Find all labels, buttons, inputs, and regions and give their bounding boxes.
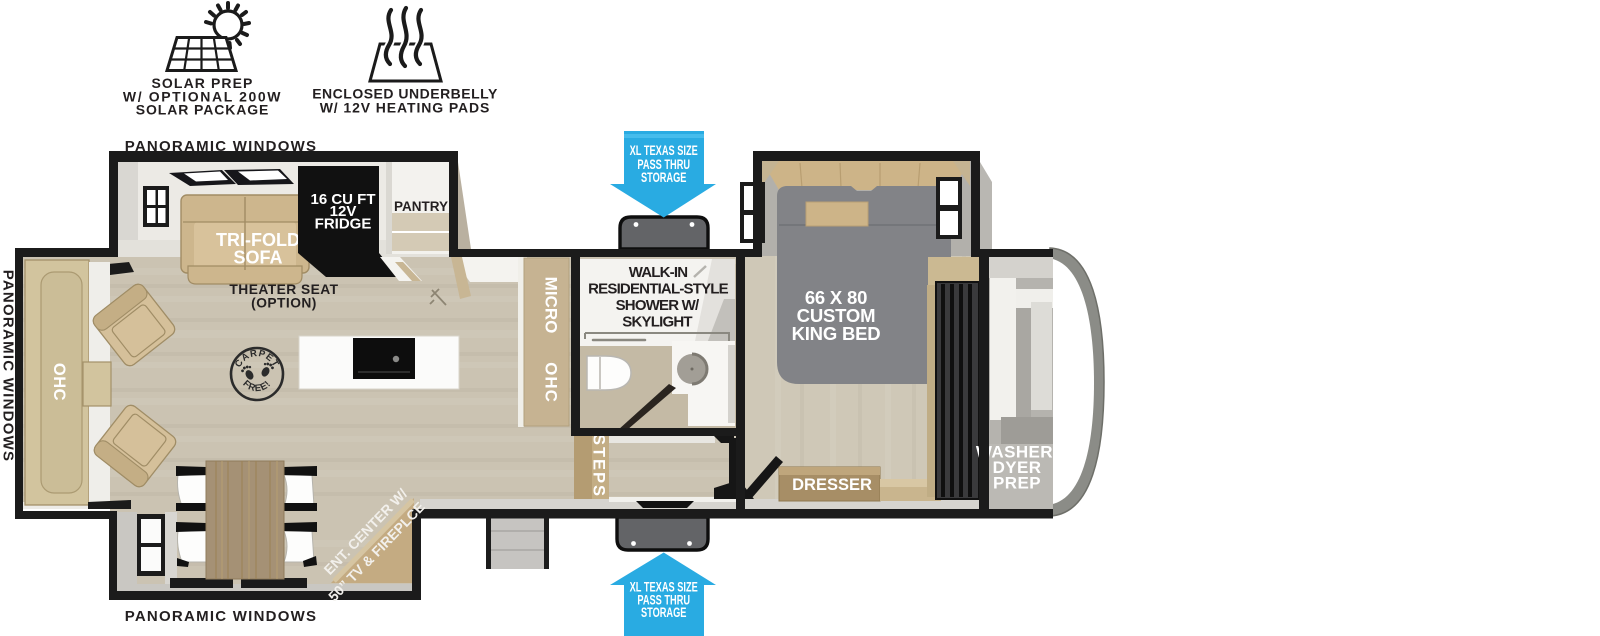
svg-text:SOFA: SOFA	[233, 248, 282, 268]
svg-text:FRIDGE: FRIDGE	[315, 216, 372, 233]
svg-text:STEPS: STEPS	[590, 434, 608, 498]
svg-text:RESIDENTIAL-STYLE: RESIDENTIAL-STYLE	[588, 281, 729, 298]
svg-text:STORAGE: STORAGE	[641, 169, 687, 186]
svg-text:PANTRY: PANTRY	[394, 199, 448, 214]
svg-text:OHC: OHC	[542, 362, 561, 403]
svg-text:PREP: PREP	[993, 474, 1041, 493]
svg-text:WALK-IN: WALK-IN	[629, 264, 688, 281]
svg-text:SHOWER W/: SHOWER W/	[616, 297, 700, 314]
svg-text:PANORAMIC WINDOWS: PANORAMIC WINDOWS	[0, 270, 17, 463]
svg-text:KING BED: KING BED	[792, 323, 881, 344]
svg-text:SOLAR PACKAGE: SOLAR PACKAGE	[136, 102, 270, 118]
svg-text:MICRO: MICRO	[542, 277, 561, 334]
svg-text:PANORAMIC WINDOWS: PANORAMIC WINDOWS	[125, 608, 318, 625]
svg-text:SKYLIGHT: SKYLIGHT	[622, 314, 692, 331]
svg-text:OHC: OHC	[50, 363, 68, 401]
svg-text:STORAGE: STORAGE	[641, 604, 687, 621]
svg-text:W/ 12V HEATING PADS: W/ 12V HEATING PADS	[320, 100, 491, 116]
svg-text:DRESSER: DRESSER	[792, 476, 872, 494]
svg-text:(OPTION): (OPTION)	[251, 296, 317, 311]
